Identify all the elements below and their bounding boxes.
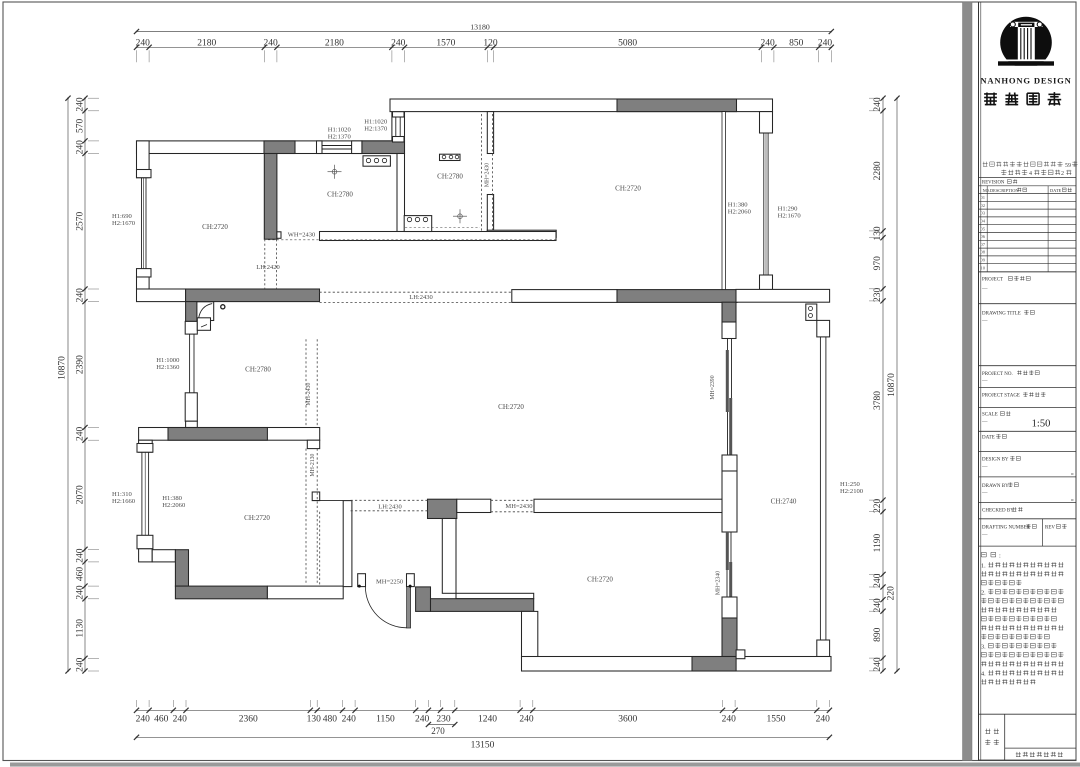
svg-text:—: —	[981, 318, 988, 324]
svg-text::: :	[999, 553, 1001, 560]
svg-text:CH:2780: CH:2780	[437, 173, 463, 181]
svg-text:PROJECT: PROJECT	[982, 278, 1003, 283]
svg-text:H1:380: H1:380	[162, 495, 182, 502]
svg-text:3.: 3.	[981, 644, 986, 651]
svg-text:1.: 1.	[981, 563, 986, 570]
svg-text:CH:2720: CH:2720	[498, 403, 524, 411]
svg-text:LH:2430: LH:2430	[378, 504, 401, 511]
svg-text:LH:2420: LH:2420	[256, 264, 279, 271]
svg-text:1550: 1550	[767, 714, 786, 724]
svg-text:1150: 1150	[376, 714, 395, 724]
svg-text:130: 130	[307, 714, 322, 724]
svg-text:2180: 2180	[197, 39, 216, 49]
svg-text:CH:2720: CH:2720	[244, 514, 270, 522]
svg-text:MH=2430: MH=2430	[505, 503, 532, 510]
svg-text:59: 59	[1065, 163, 1071, 169]
svg-text:2.: 2.	[981, 590, 986, 597]
svg-text:CH:2740: CH:2740	[771, 498, 797, 506]
svg-text:1570: 1570	[436, 39, 455, 49]
svg-text:240: 240	[75, 140, 85, 155]
svg-text:CH:2720: CH:2720	[587, 576, 613, 584]
svg-text:—: —	[981, 378, 988, 384]
svg-text:NO.: NO.	[983, 188, 990, 193]
svg-text:PROJECT NO.: PROJECT NO.	[982, 372, 1013, 377]
svg-text:—: —	[981, 419, 988, 425]
svg-text:DRAWN BY: DRAWN BY	[982, 484, 1009, 489]
svg-text:10870: 10870	[887, 373, 897, 397]
svg-text:13150: 13150	[471, 740, 495, 750]
svg-text:H2:1660: H2:1660	[112, 498, 136, 505]
svg-text:MH=2250: MH=2250	[376, 579, 403, 586]
svg-text:REVISION: REVISION	[982, 181, 1005, 186]
svg-text:CH:2720: CH:2720	[202, 223, 228, 231]
svg-text:2570: 2570	[75, 212, 85, 231]
svg-text:MH-2130: MH-2130	[310, 453, 316, 476]
svg-text:H2:2100: H2:2100	[840, 488, 864, 495]
svg-text:H1:310: H1:310	[112, 491, 132, 498]
svg-text:H2:1670: H2:1670	[112, 220, 136, 227]
svg-text:08: 08	[980, 250, 985, 255]
svg-text:230: 230	[873, 288, 883, 303]
svg-text:07: 07	[980, 242, 985, 247]
svg-text:DATE: DATE	[1050, 188, 1062, 193]
svg-text:03: 03	[980, 211, 985, 216]
svg-text:H1:1020: H1:1020	[364, 119, 388, 126]
svg-text:240: 240	[873, 598, 883, 613]
svg-text:06: 06	[980, 234, 985, 239]
svg-text:240: 240	[760, 39, 775, 49]
svg-text:H2:2060: H2:2060	[162, 502, 186, 509]
svg-text:460: 460	[75, 567, 85, 582]
svg-text:240: 240	[75, 288, 85, 303]
svg-text:H2:1370: H2:1370	[328, 134, 352, 141]
svg-text:2: 2	[1061, 171, 1064, 177]
svg-text:3780: 3780	[873, 391, 883, 410]
svg-text:—: —	[981, 286, 988, 292]
svg-text:3600: 3600	[618, 714, 637, 724]
svg-text:240: 240	[818, 39, 833, 49]
svg-text:MH=2340: MH=2340	[715, 571, 721, 595]
svg-text:H2:1370: H2:1370	[364, 126, 388, 133]
svg-text:SCALE: SCALE	[982, 413, 998, 418]
svg-text:220: 220	[873, 499, 883, 514]
svg-text:NANHONG DESIGN: NANHONG DESIGN	[980, 76, 1071, 86]
svg-text:2070: 2070	[75, 485, 85, 504]
svg-text:H1:250: H1:250	[840, 481, 860, 488]
svg-text:MH=2390: MH=2390	[710, 375, 716, 399]
svg-text:H1:290: H1:290	[778, 206, 798, 213]
svg-text:270: 270	[431, 726, 445, 736]
svg-text:H2:1360: H2:1360	[156, 364, 180, 371]
svg-text:DATE: DATE	[982, 436, 995, 441]
svg-text:13180: 13180	[470, 23, 490, 32]
svg-text:230: 230	[436, 714, 451, 724]
svg-text:220: 220	[887, 586, 897, 601]
svg-text:H1:1000: H1:1000	[156, 357, 180, 364]
svg-text:240: 240	[873, 97, 883, 112]
svg-text:2390: 2390	[75, 355, 85, 374]
svg-text:120: 120	[483, 39, 498, 49]
svg-text:DRAWING TITLE: DRAWING TITLE	[982, 312, 1021, 317]
svg-text:130: 130	[873, 226, 883, 241]
svg-text:240: 240	[75, 585, 85, 600]
svg-text:09: 09	[980, 258, 985, 263]
svg-text:10870: 10870	[58, 356, 68, 380]
svg-text:H1:380: H1:380	[728, 201, 748, 208]
svg-text:LH:2430: LH:2430	[409, 294, 432, 301]
svg-text:WH=2430: WH=2430	[288, 232, 316, 239]
svg-text:4.: 4.	[981, 671, 986, 678]
svg-text:1240: 1240	[478, 714, 497, 724]
svg-text:240: 240	[75, 548, 85, 563]
svg-text:MH=2430: MH=2430	[485, 163, 491, 187]
svg-text:DESIGN BY: DESIGN BY	[982, 458, 1009, 463]
svg-text:CH:2780: CH:2780	[327, 191, 353, 199]
svg-text:240: 240	[816, 714, 831, 724]
svg-text:05: 05	[980, 226, 985, 231]
svg-text:PROJECT STAGE: PROJECT STAGE	[982, 394, 1020, 399]
svg-text:2180: 2180	[325, 39, 344, 49]
svg-text:H1:690: H1:690	[112, 213, 132, 220]
svg-text:240: 240	[136, 39, 151, 49]
svg-text:H2:1670: H2:1670	[778, 213, 802, 220]
svg-text:240: 240	[173, 714, 188, 724]
svg-text:240: 240	[519, 714, 534, 724]
svg-text:240: 240	[75, 427, 85, 442]
svg-text:DESCRIPTION: DESCRIPTION	[990, 188, 1019, 193]
svg-text:CH:2780: CH:2780	[245, 366, 271, 374]
svg-text:890: 890	[873, 627, 883, 642]
svg-text:240: 240	[722, 714, 737, 724]
svg-text:1:50: 1:50	[1032, 419, 1051, 430]
svg-text:H2:2060: H2:2060	[728, 208, 752, 215]
svg-text:240: 240	[415, 714, 430, 724]
svg-text:570: 570	[75, 119, 85, 133]
svg-text:10: 10	[980, 266, 985, 271]
svg-text:DRAFTING NUMBER: DRAFTING NUMBER	[982, 526, 1031, 531]
svg-text:240: 240	[75, 97, 85, 112]
svg-text:240: 240	[75, 657, 85, 672]
svg-text:H1:1020: H1:1020	[328, 127, 352, 134]
svg-text:240: 240	[873, 657, 883, 672]
svg-text:04: 04	[980, 219, 985, 224]
svg-text:CH:2720: CH:2720	[615, 185, 641, 193]
svg-text:01: 01	[980, 195, 985, 200]
svg-text:REV: REV	[1045, 526, 1055, 531]
svg-text:CHECKED BY: CHECKED BY	[982, 509, 1014, 514]
svg-text:—: —	[981, 490, 988, 496]
svg-text:240: 240	[263, 39, 278, 49]
svg-text:240: 240	[342, 714, 357, 724]
svg-text:970: 970	[873, 256, 883, 271]
svg-text:2360: 2360	[239, 714, 258, 724]
svg-text:—: —	[981, 532, 988, 538]
svg-text:02: 02	[980, 203, 985, 208]
svg-text:240: 240	[391, 39, 406, 49]
svg-text:5080: 5080	[618, 39, 637, 49]
svg-text:—: —	[981, 464, 988, 470]
svg-text:4: 4	[1029, 171, 1032, 177]
svg-text:1130: 1130	[75, 619, 85, 638]
svg-text:MH-2430: MH-2430	[306, 382, 312, 405]
svg-text:2280: 2280	[873, 161, 883, 180]
svg-text:1190: 1190	[873, 534, 883, 553]
svg-text:240: 240	[873, 573, 883, 588]
svg-text:460: 460	[154, 714, 169, 724]
svg-text:240: 240	[136, 714, 151, 724]
svg-text:850: 850	[789, 39, 804, 49]
svg-text:480: 480	[323, 714, 338, 724]
